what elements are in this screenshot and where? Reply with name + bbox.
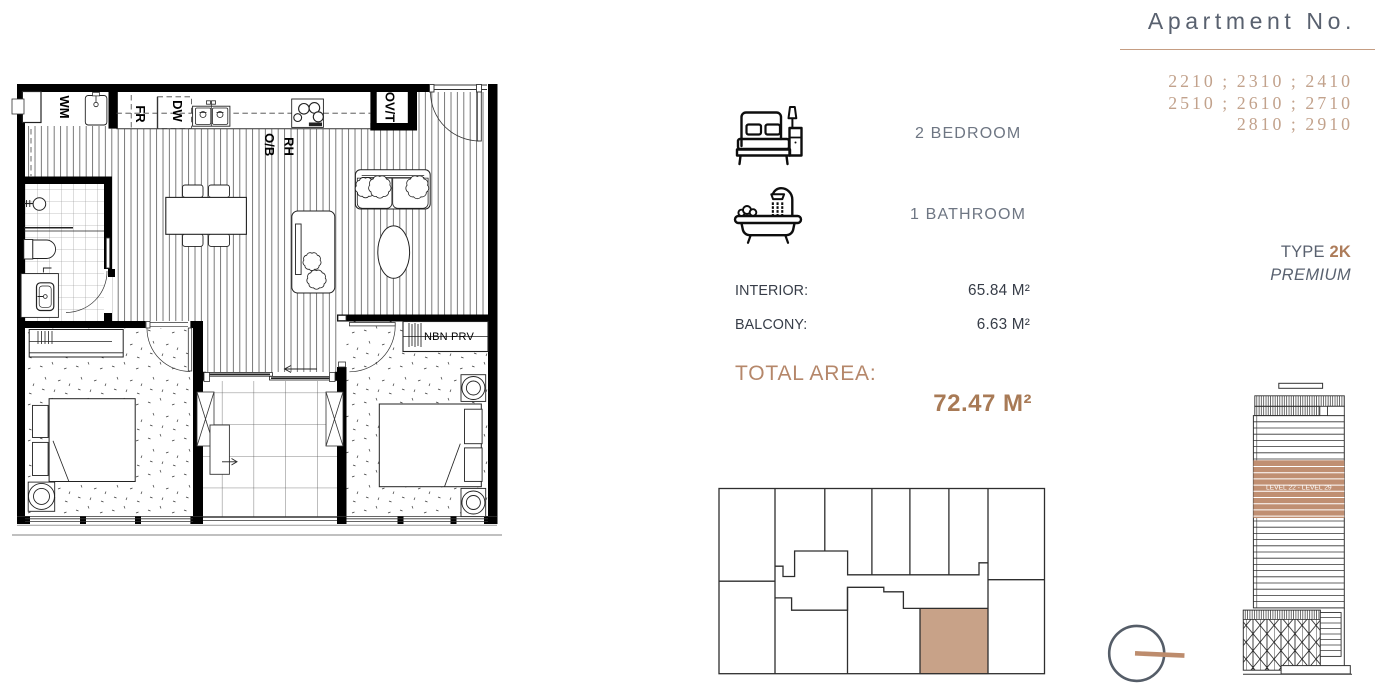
svg-text:WM: WM	[57, 95, 72, 118]
svg-text:RH: RH	[282, 137, 297, 156]
svg-text:LEVEL 22 - LEVEL 29: LEVEL 22 - LEVEL 29	[1266, 485, 1332, 492]
svg-text:O/B: O/B	[262, 133, 277, 156]
svg-text:NBN PRV: NBN PRV	[424, 331, 475, 343]
svg-text:DW: DW	[170, 100, 185, 122]
svg-text:FR: FR	[133, 105, 148, 123]
svg-text:OV/T: OV/T	[383, 92, 398, 122]
